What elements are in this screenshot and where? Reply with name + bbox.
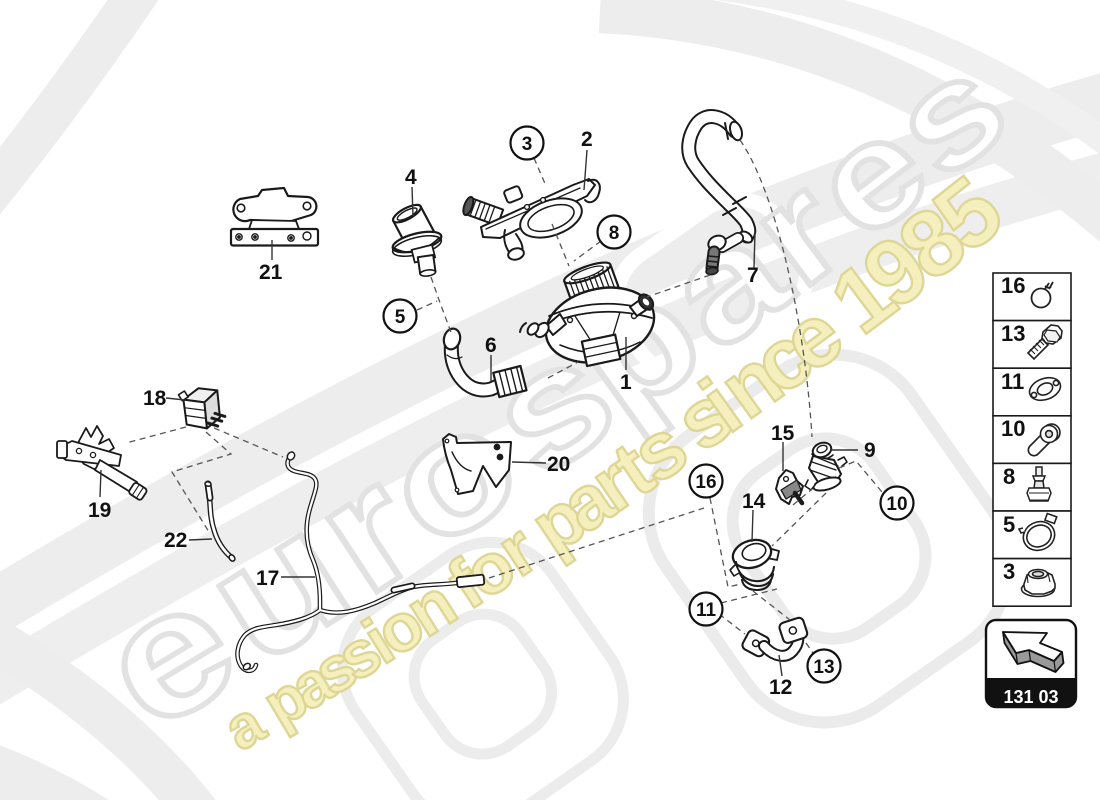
- svg-text:13: 13: [1001, 321, 1025, 346]
- svg-text:21: 21: [259, 261, 283, 284]
- svg-text:3: 3: [1003, 559, 1015, 584]
- svg-text:19: 19: [88, 499, 111, 522]
- svg-text:6: 6: [485, 334, 497, 357]
- svg-text:11: 11: [696, 600, 717, 621]
- svg-text:17: 17: [256, 567, 279, 590]
- svg-text:11: 11: [1001, 369, 1024, 394]
- svg-text:18: 18: [143, 387, 167, 410]
- svg-text:131 03: 131 03: [1003, 687, 1058, 707]
- svg-text:4: 4: [405, 166, 417, 189]
- svg-text:8: 8: [609, 223, 620, 244]
- svg-text:3: 3: [522, 134, 533, 155]
- svg-text:1: 1: [620, 371, 632, 394]
- svg-text:5: 5: [395, 307, 406, 328]
- svg-text:16: 16: [1001, 273, 1025, 298]
- svg-text:8: 8: [1003, 464, 1015, 489]
- svg-text:15: 15: [771, 422, 795, 445]
- svg-text:13: 13: [813, 657, 834, 678]
- svg-text:12: 12: [769, 676, 792, 699]
- svg-text:20: 20: [547, 453, 570, 476]
- svg-text:9: 9: [864, 439, 876, 462]
- svg-text:7: 7: [747, 264, 759, 287]
- svg-text:5: 5: [1003, 512, 1015, 537]
- svg-text:16: 16: [695, 472, 716, 493]
- svg-text:14: 14: [742, 490, 766, 513]
- svg-text:22: 22: [164, 529, 187, 552]
- svg-text:10: 10: [886, 494, 907, 515]
- svg-text:2: 2: [581, 128, 593, 151]
- svg-text:10: 10: [1001, 416, 1025, 441]
